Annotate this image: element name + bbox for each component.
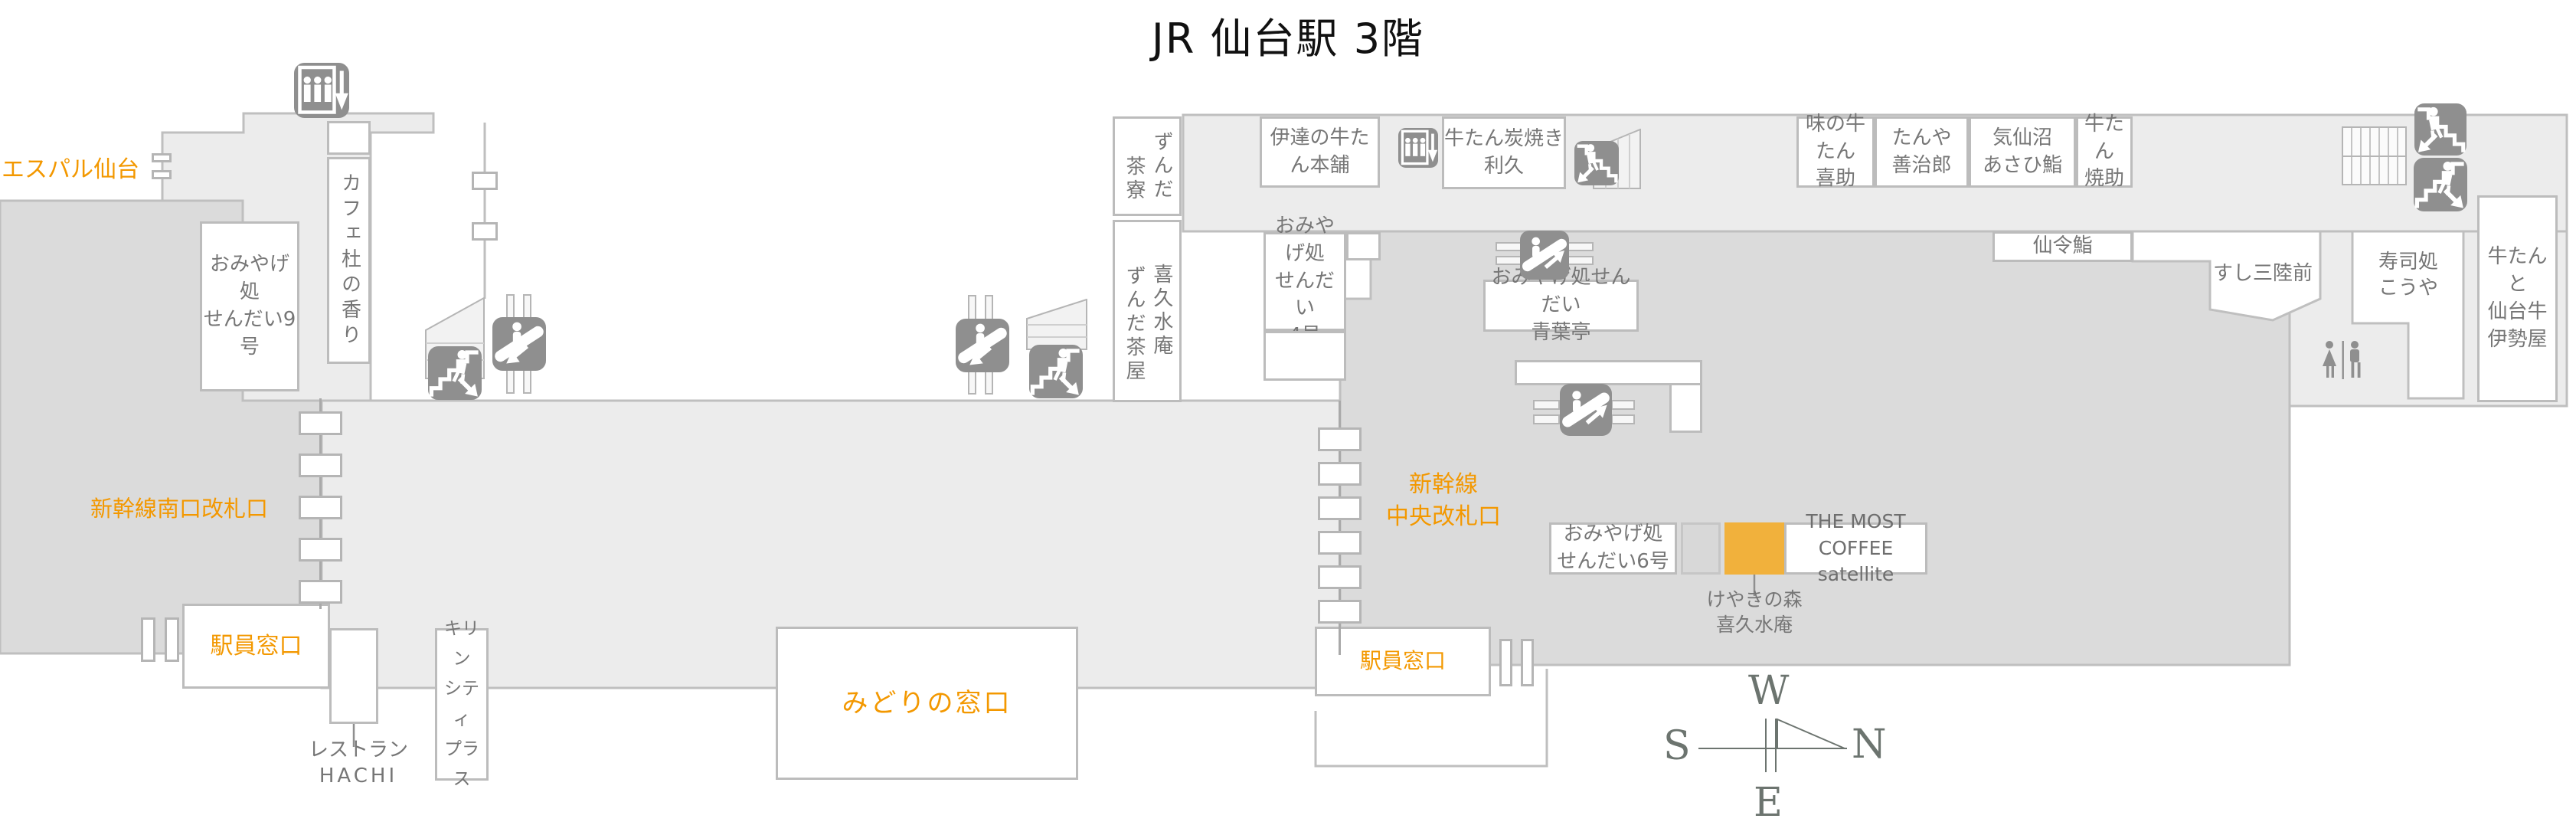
stairs-down-icon [427, 346, 482, 400]
escalator-down-icon [492, 316, 546, 372]
shop-kikusui-zunda: 喜久水庵ずんだ茶屋 [1113, 220, 1182, 402]
south-gate-box [299, 454, 342, 477]
escalator-up-icon [1560, 383, 1612, 437]
shop-asahi: 気仙沼あさひ鮨 [1969, 116, 2076, 188]
compass-south: S [1663, 723, 1691, 769]
compass-west: W [1748, 668, 1789, 714]
central-gate-box [1318, 531, 1362, 555]
elevator-icon [1398, 121, 1438, 175]
central-gate-box [1318, 600, 1362, 624]
shop-zenjiro: たんや善治郎 [1875, 116, 1969, 188]
shop-yakisuke: 牛たん焼助 [2076, 116, 2133, 188]
room-omiyage4-annex [1263, 331, 1346, 381]
escalator-track [1611, 400, 1635, 410]
room-small-upper-left [327, 121, 371, 155]
shop-aobatei: おみやげ処せんだい青葉亭 [1483, 280, 1639, 332]
shop-keyaki-highlight [1724, 522, 1784, 575]
escalator-track [1533, 414, 1560, 424]
espal-gate [152, 170, 172, 179]
walkway-outline-b [1669, 383, 1702, 433]
shop-omiyage6: おみやげ処せんだい6号 [1549, 522, 1677, 575]
stairs-hatch [2342, 126, 2407, 185]
south-gate-box [299, 411, 342, 435]
shop-iseya: 牛たんと仙台牛伊勢屋 [2477, 195, 2558, 402]
shop-kirin-city-plus: キリンシティプラス [435, 628, 489, 781]
central-entrance-gate [1499, 639, 1512, 686]
stairs-down-icon [2414, 158, 2467, 211]
shop-date-honpo: 伊達の牛たん本舗 [1260, 116, 1380, 188]
escalator-track [1568, 256, 1594, 265]
south-gate-box [299, 538, 342, 562]
shop-senrei: 仙令鮨 [1992, 231, 2133, 262]
staff-window-right: 駅員窓口 [1315, 627, 1491, 696]
label-south-gate: 新幹線南口改札口 [90, 494, 268, 523]
escalator-track [1496, 256, 1522, 265]
shop-kisuke: 味の牛たん喜助 [1796, 116, 1875, 188]
central-gate-box [1318, 462, 1362, 486]
label-restaurant-hachi: レストラン HACHI [282, 737, 435, 790]
escalator-track [1611, 414, 1635, 424]
compass-east: E [1754, 780, 1783, 826]
shop-most-coffee: THE MOST COFFEEsatellite [1784, 522, 1927, 575]
midori-window: みどりの窓口 [776, 627, 1078, 780]
espal-gate [152, 153, 172, 162]
escalator-track [1496, 242, 1522, 251]
room-restaurant-hachi [329, 628, 378, 724]
label-keyaki: けやきの森 喜久水庵 [1678, 587, 1831, 637]
south-entrance-gate [165, 617, 179, 662]
stairs-hatch-divider [2343, 156, 2405, 157]
shop-omiyage4: おみやげ処せんだい4号 [1263, 232, 1346, 331]
espal-east-gate [472, 172, 498, 190]
room-gray-small [1681, 522, 1721, 575]
staff-window-left: 駅員窓口 [182, 604, 330, 689]
station-floor-map: JR 仙台駅 3階 エスパル仙台 新幹線南口改札口 新幹線 中央改札口 けやきの… [0, 0, 2576, 835]
shop-omiyage9: おみやげ処せんだい9号 [200, 221, 299, 391]
south-gate-box [299, 580, 342, 604]
escalator-down-icon [956, 318, 1009, 373]
shop-kouya-label: 寿司処こうや [2353, 249, 2463, 302]
page-title: JR 仙台駅 3階 [0, 5, 2576, 65]
shop-zunda-saryo: ずんだ茶寮 [1113, 116, 1182, 216]
shop-cafe-mori: カフェ杜の香り [327, 157, 371, 364]
label-espal: エスパル仙台 [2, 155, 139, 185]
stairs-down-icon [2414, 103, 2467, 156]
south-entrance-gate [141, 617, 155, 662]
walkway-outline-a [1515, 360, 1702, 385]
escalator-up-icon [1520, 230, 1569, 280]
stair-wedge [1026, 299, 1087, 350]
stairs-down-icon [1574, 136, 1619, 190]
room-small-top [1346, 232, 1381, 260]
central-gate-box [1318, 565, 1362, 589]
escalator-track [1533, 400, 1560, 410]
central-gate-box [1318, 496, 1362, 520]
label-sanriku: すし三陸前 [2205, 260, 2320, 287]
label-central-gate: 新幹線 中央改札口 [1367, 469, 1520, 533]
central-entrance-gate [1521, 639, 1534, 686]
restroom-icon [2319, 339, 2368, 381]
south-gate-box [299, 496, 342, 519]
stairs-down-icon [1028, 345, 1084, 398]
central-gate-box [1318, 427, 1362, 451]
compass-north: N [1852, 722, 1887, 768]
shop-rikyu: 牛たん炭焼き利久 [1442, 116, 1566, 189]
espal-east-gate [472, 222, 498, 241]
elevator-icon [293, 63, 350, 118]
escalator-track [1568, 242, 1594, 251]
